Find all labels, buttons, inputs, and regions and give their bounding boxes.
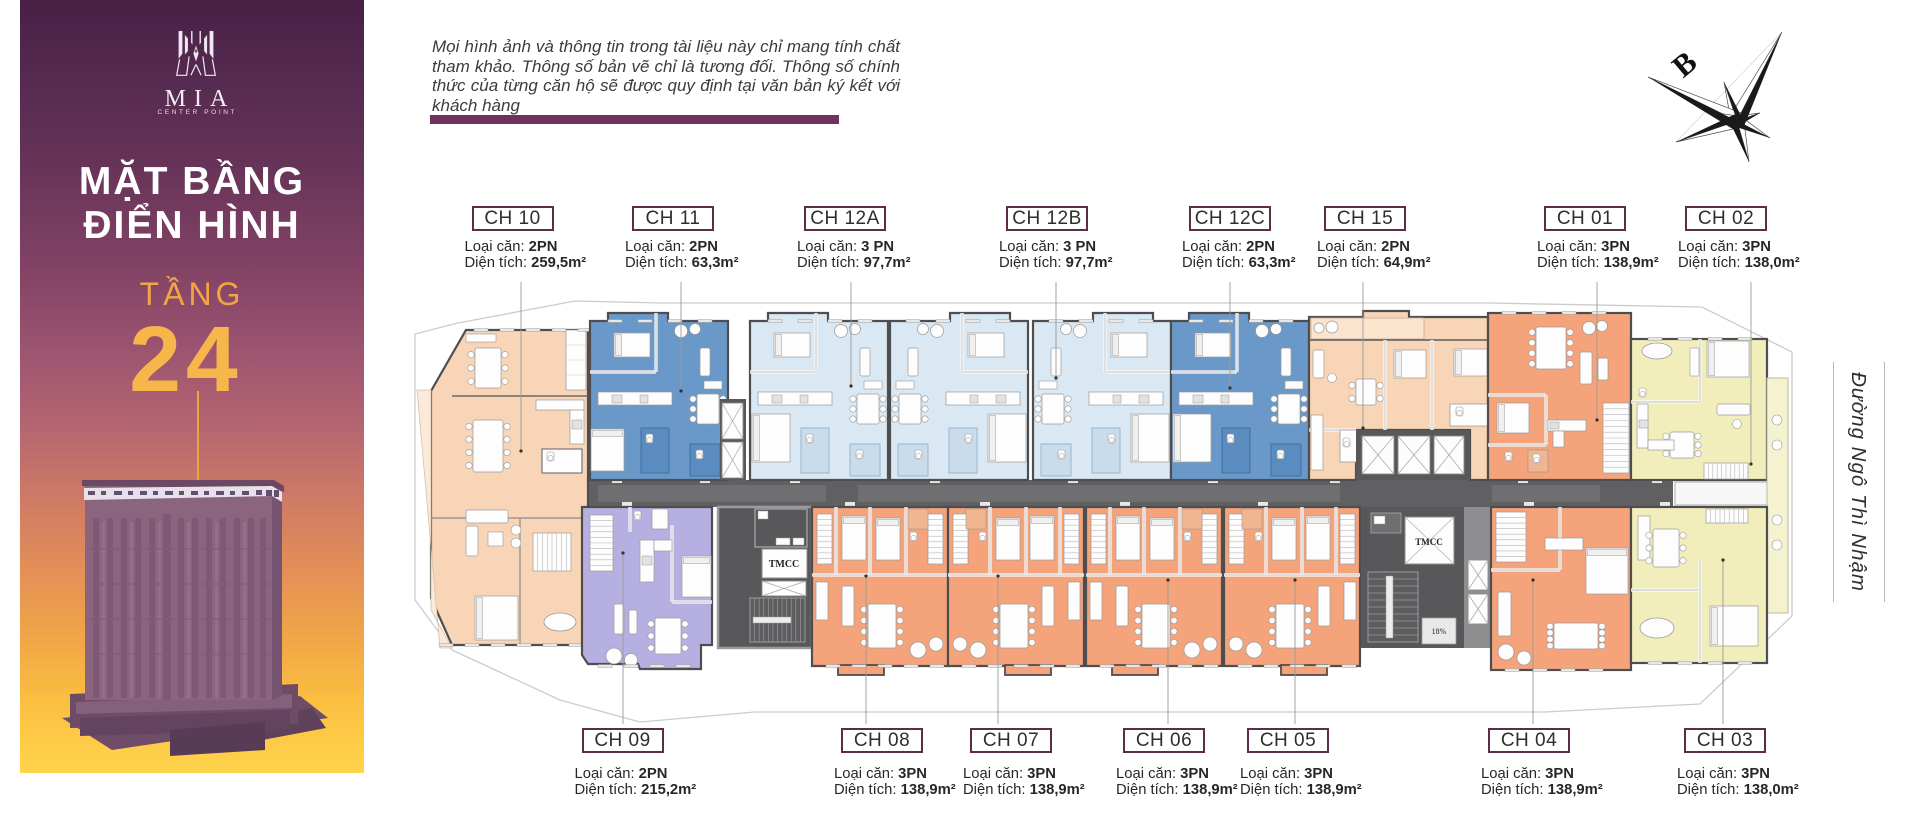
svg-text:18%: 18% (1432, 627, 1447, 636)
svg-text:TMCC: TMCC (1415, 537, 1443, 547)
svg-text:TMCC: TMCC (769, 559, 800, 570)
